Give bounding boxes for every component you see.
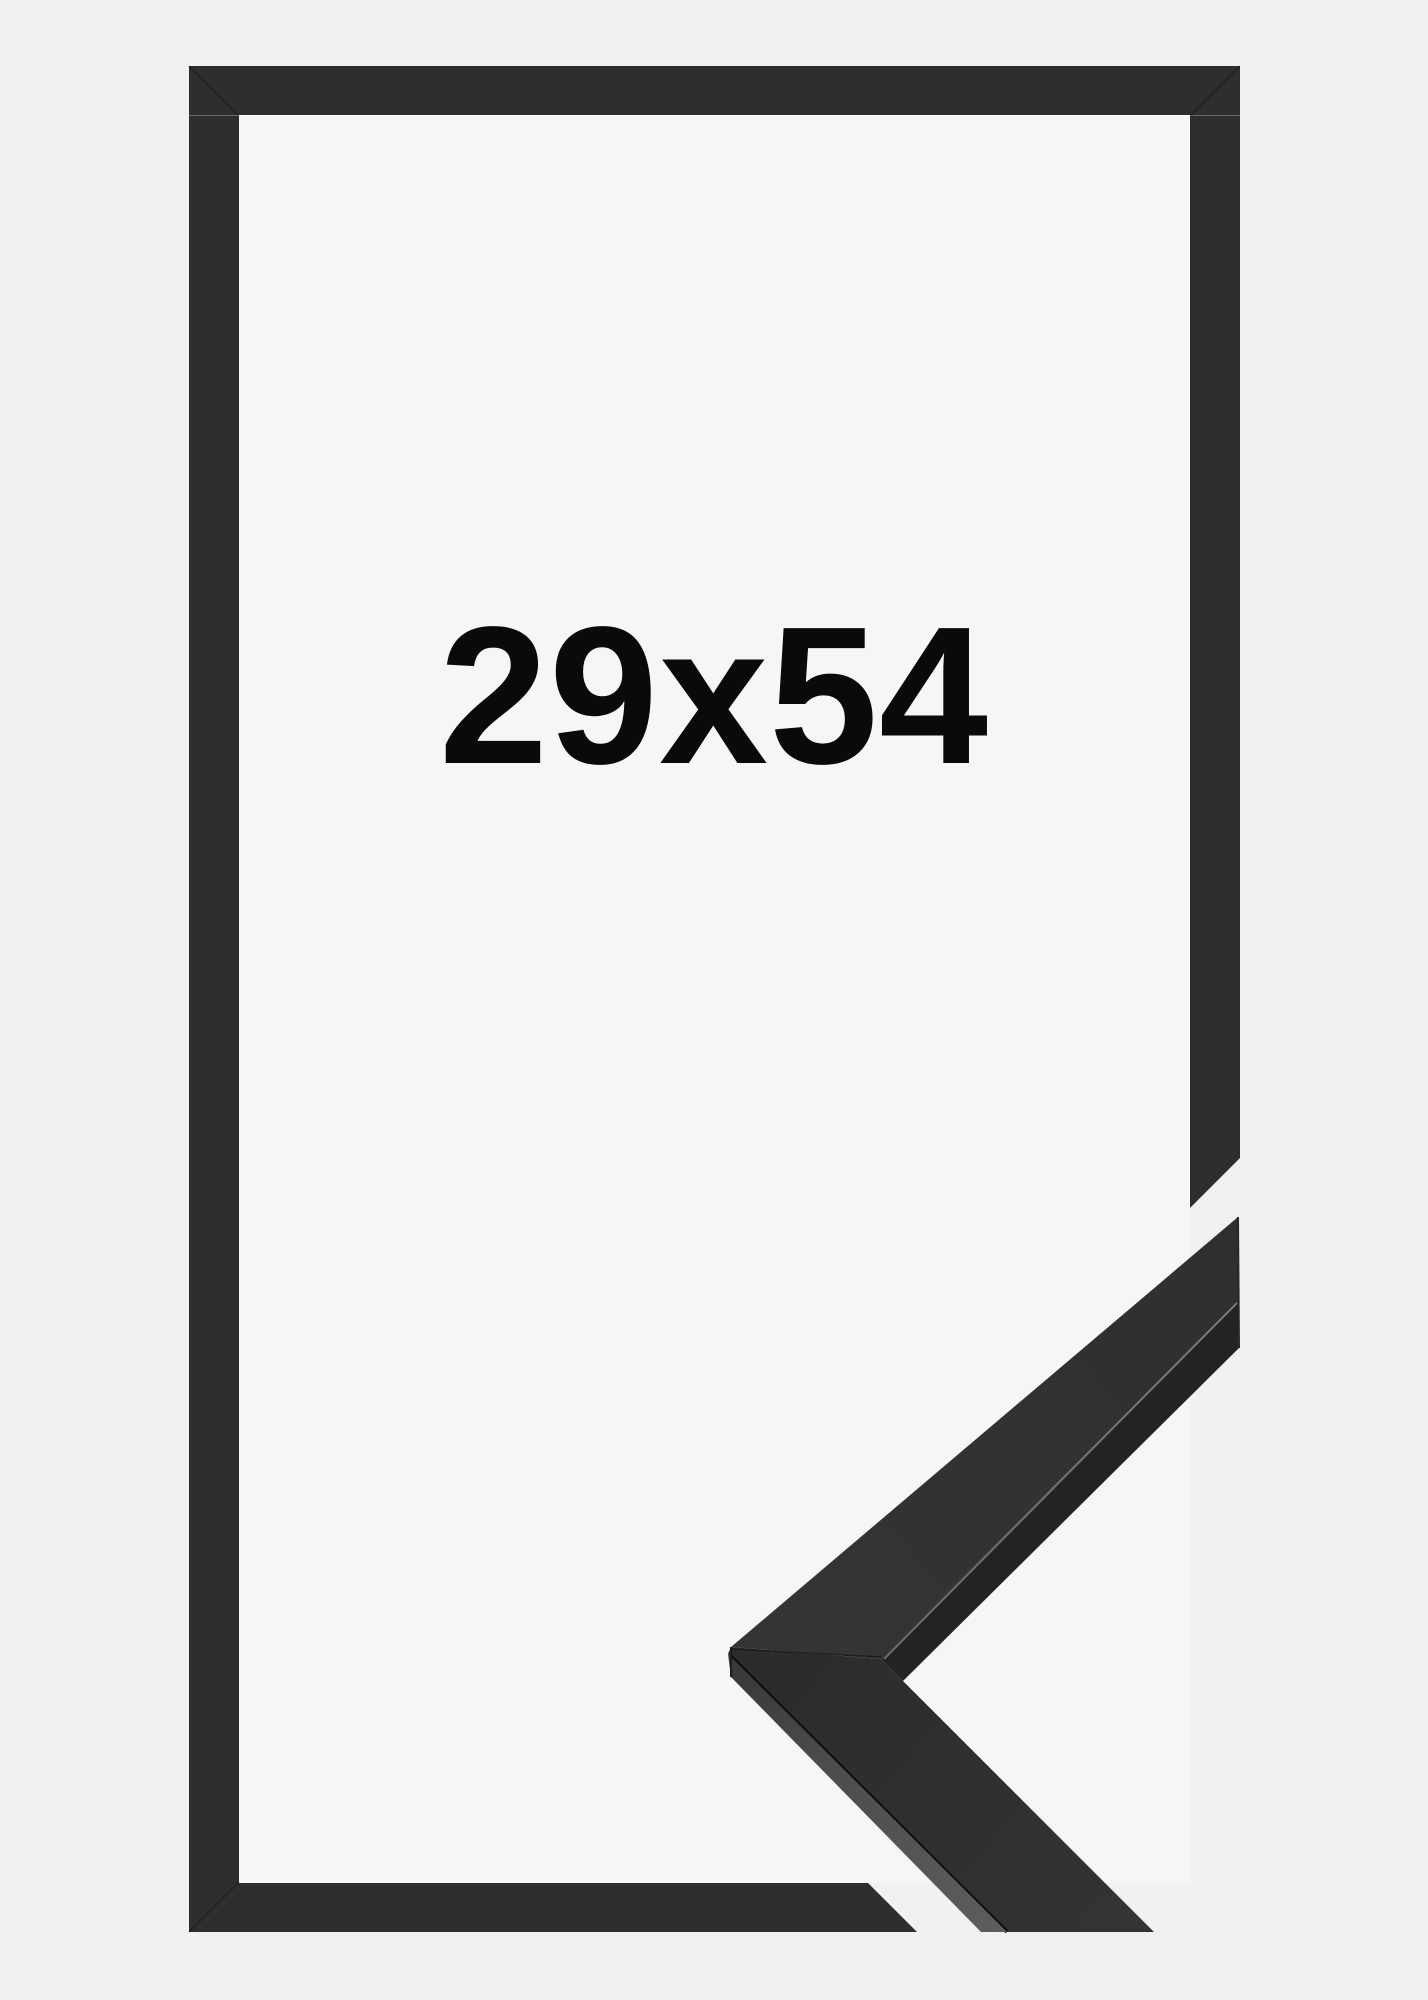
sample-upper-arm-end-edge (1238, 1217, 1239, 1348)
frame-backing (239, 115, 1190, 1883)
product-image: 29x54 (0, 0, 1428, 2000)
frame-bar-right (1190, 66, 1240, 1208)
frame-bar-bottom (189, 1883, 917, 1932)
frame-product-graphic: 29x54 (0, 0, 1428, 2000)
frame-bar-left (189, 66, 239, 1932)
frame-bar-top (189, 66, 1240, 115)
size-label: 29x54 (439, 586, 989, 805)
